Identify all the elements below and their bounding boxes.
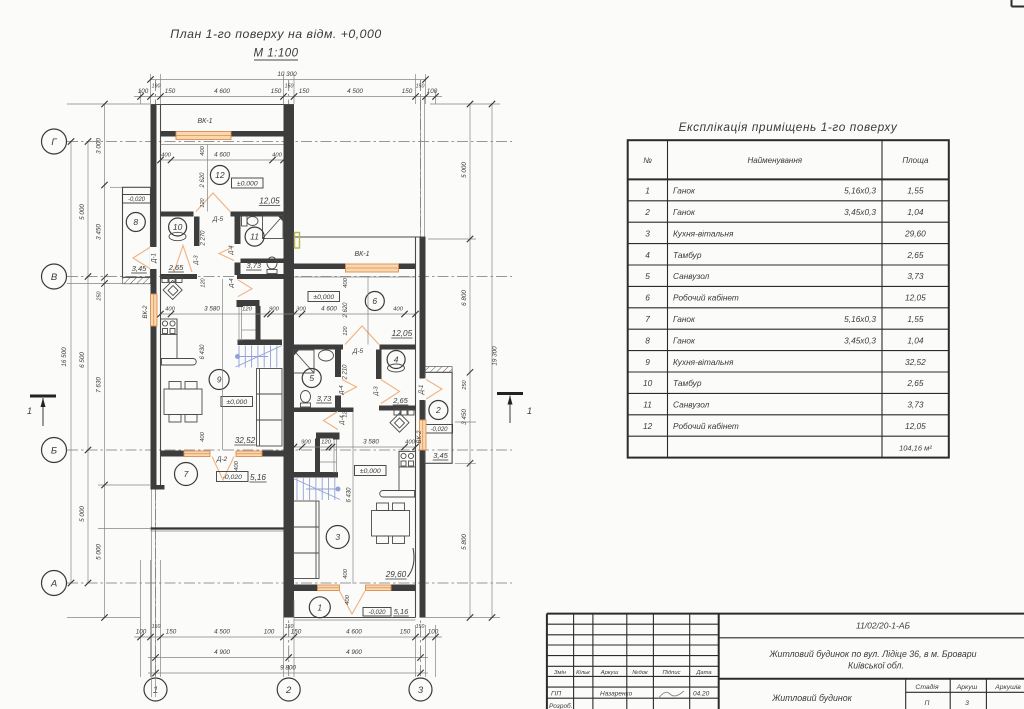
svg-text:Д-4: Д-4 bbox=[229, 245, 235, 255]
svg-text:Аркуш: Аркуш bbox=[956, 684, 978, 691]
svg-text:250: 250 bbox=[97, 290, 103, 301]
svg-text:12: 12 bbox=[643, 421, 653, 431]
svg-text:Аркушів: Аркушів bbox=[994, 683, 1021, 691]
svg-text:6 430: 6 430 bbox=[347, 487, 353, 503]
svg-text:±0,000: ±0,000 bbox=[313, 294, 334, 301]
svg-text:Експлікація приміщень 1-го пов: Експлікація приміщень 1-го поверху bbox=[679, 120, 898, 134]
svg-text:150: 150 bbox=[285, 84, 294, 90]
svg-text:120: 120 bbox=[242, 307, 252, 313]
svg-text:ВК-1: ВК-1 bbox=[354, 251, 369, 258]
svg-text:3,45: 3,45 bbox=[433, 451, 448, 460]
svg-text:150: 150 bbox=[165, 88, 176, 95]
svg-text:32,52: 32,52 bbox=[235, 436, 256, 445]
svg-text:1,04: 1,04 bbox=[907, 335, 924, 345]
svg-text:Робочий кабінет: Робочий кабінет bbox=[673, 293, 739, 303]
svg-text:400: 400 bbox=[345, 594, 351, 604]
svg-text:3 580: 3 580 bbox=[204, 306, 220, 313]
svg-text:6 500: 6 500 bbox=[79, 352, 86, 368]
svg-text:1: 1 bbox=[645, 186, 650, 196]
svg-text:3: 3 bbox=[965, 700, 969, 707]
svg-text:300: 300 bbox=[296, 307, 306, 313]
svg-text:ГІП: ГІП bbox=[551, 691, 561, 698]
svg-text:-0,020: -0,020 bbox=[223, 474, 242, 481]
svg-text:3,45х0,3: 3,45х0,3 bbox=[844, 335, 876, 345]
svg-text:Ганок: Ганок bbox=[673, 314, 696, 324]
svg-text:Підпис: Підпис bbox=[662, 670, 680, 676]
svg-text:2 620: 2 620 bbox=[343, 302, 349, 319]
svg-text:-0,020: -0,020 bbox=[128, 197, 146, 203]
svg-text:150: 150 bbox=[299, 88, 310, 95]
svg-text:Стадія: Стадія bbox=[915, 683, 939, 691]
svg-text:120: 120 bbox=[201, 277, 207, 287]
svg-text:5,16: 5,16 bbox=[250, 473, 266, 482]
svg-text:Київської обл.: Київської обл. bbox=[848, 661, 904, 671]
svg-text:3,73: 3,73 bbox=[907, 400, 924, 410]
svg-text:10: 10 bbox=[643, 378, 653, 388]
svg-text:120: 120 bbox=[321, 440, 331, 446]
svg-text:1,04: 1,04 bbox=[907, 207, 924, 217]
svg-text:5: 5 bbox=[309, 373, 314, 383]
svg-text:900: 900 bbox=[269, 307, 279, 313]
svg-text:Дата: Дата bbox=[695, 670, 712, 676]
svg-text:2 210: 2 210 bbox=[343, 364, 349, 381]
svg-text:5 000: 5 000 bbox=[79, 506, 86, 522]
svg-text:12,05: 12,05 bbox=[905, 293, 926, 303]
svg-text:100: 100 bbox=[427, 88, 438, 95]
svg-text:4 600: 4 600 bbox=[346, 629, 362, 636]
svg-text:190: 190 bbox=[152, 84, 161, 90]
svg-text:150: 150 bbox=[416, 84, 425, 90]
svg-text:План 1-го поверху на відм. +0,: План 1-го поверху на відм. +0,000 bbox=[170, 27, 381, 41]
svg-text:400: 400 bbox=[272, 153, 282, 159]
svg-text:1: 1 bbox=[527, 406, 532, 416]
svg-text:104,16 м²: 104,16 м² bbox=[899, 444, 932, 453]
svg-text:6 800: 6 800 bbox=[461, 290, 468, 306]
svg-text:11/02/20-1-АБ: 11/02/20-1-АБ bbox=[856, 621, 911, 631]
svg-text:2: 2 bbox=[644, 207, 650, 217]
svg-text:Житловий будинок по вул. Лідіц: Житловий будинок по вул. Лідіце 36, в м.… bbox=[768, 649, 976, 659]
svg-text:±0,000: ±0,000 bbox=[237, 180, 258, 187]
svg-text:Тамбур: Тамбур bbox=[673, 378, 702, 388]
svg-text:5 800: 5 800 bbox=[461, 534, 468, 550]
svg-text:Кухня-вітальня: Кухня-вітальня bbox=[673, 357, 734, 367]
svg-text:Площа: Площа bbox=[902, 156, 929, 165]
svg-text:10: 10 bbox=[173, 222, 183, 232]
svg-text:В: В bbox=[51, 272, 58, 283]
svg-text:Найменування: Найменування bbox=[747, 156, 802, 165]
svg-text:Д-2: Д-2 bbox=[216, 456, 228, 463]
svg-text:04.20: 04.20 bbox=[693, 691, 710, 698]
svg-text:Д-1: Д-1 bbox=[152, 253, 158, 264]
svg-text:3,73: 3,73 bbox=[317, 394, 332, 403]
svg-text:100: 100 bbox=[138, 88, 149, 95]
svg-text:400: 400 bbox=[234, 460, 240, 470]
svg-text:5 000: 5 000 bbox=[461, 162, 468, 178]
svg-text:8: 8 bbox=[645, 335, 650, 345]
svg-text:4 500: 4 500 bbox=[347, 88, 363, 95]
svg-text:№док: №док bbox=[632, 670, 648, 676]
svg-text:№: № bbox=[643, 156, 652, 165]
svg-text:2 620: 2 620 bbox=[200, 172, 206, 189]
svg-text:120: 120 bbox=[343, 407, 349, 417]
svg-text:120: 120 bbox=[343, 325, 349, 335]
svg-text:Д-5: Д-5 bbox=[212, 216, 224, 223]
svg-text:5: 5 bbox=[645, 271, 650, 281]
svg-text:7: 7 bbox=[184, 469, 189, 479]
svg-text:400: 400 bbox=[405, 440, 415, 446]
svg-text:3,45х0,3: 3,45х0,3 bbox=[844, 207, 876, 217]
svg-text:7 630: 7 630 bbox=[96, 377, 103, 393]
svg-text:12: 12 bbox=[215, 170, 225, 180]
svg-text:Тамбур: Тамбур bbox=[673, 250, 702, 260]
svg-text:9: 9 bbox=[217, 375, 222, 385]
svg-text:2,65: 2,65 bbox=[168, 263, 184, 272]
svg-text:400: 400 bbox=[393, 307, 403, 313]
svg-text:400: 400 bbox=[200, 431, 206, 441]
svg-text:12,05: 12,05 bbox=[392, 329, 413, 338]
svg-text:5 000: 5 000 bbox=[79, 204, 86, 220]
svg-text:150: 150 bbox=[402, 88, 413, 95]
svg-text:±0,000: ±0,000 bbox=[360, 468, 381, 475]
svg-text:1,55: 1,55 bbox=[907, 186, 924, 196]
svg-text:±0,000: ±0,000 bbox=[226, 399, 247, 406]
svg-text:100: 100 bbox=[264, 629, 275, 636]
svg-text:-0,020: -0,020 bbox=[430, 427, 448, 433]
svg-text:Кухня-вітальня: Кухня-вітальня bbox=[673, 228, 734, 238]
svg-text:3: 3 bbox=[645, 228, 650, 238]
svg-text:6: 6 bbox=[645, 293, 650, 303]
svg-text:Ганок: Ганок bbox=[673, 207, 696, 217]
svg-text:3: 3 bbox=[418, 685, 424, 696]
svg-text:32,52: 32,52 bbox=[905, 357, 926, 367]
svg-text:150: 150 bbox=[416, 624, 425, 630]
svg-text:400: 400 bbox=[343, 568, 349, 578]
svg-text:3,73: 3,73 bbox=[907, 271, 924, 281]
svg-text:4 600: 4 600 bbox=[214, 88, 230, 95]
svg-text:3 450: 3 450 bbox=[96, 224, 103, 240]
svg-text:9 800: 9 800 bbox=[280, 665, 296, 672]
svg-text:Г: Г bbox=[51, 137, 57, 148]
svg-text:Д-4: Д-4 bbox=[339, 385, 345, 395]
svg-text:6 430: 6 430 bbox=[200, 344, 206, 360]
svg-text:1,55: 1,55 bbox=[907, 314, 924, 324]
svg-text:4 900: 4 900 bbox=[214, 649, 230, 656]
svg-text:4 900: 4 900 bbox=[346, 649, 362, 656]
svg-text:400: 400 bbox=[343, 277, 349, 287]
svg-text:4 500: 4 500 bbox=[214, 629, 230, 636]
svg-text:5,16х0,3: 5,16х0,3 bbox=[844, 186, 876, 196]
svg-text:2: 2 bbox=[435, 405, 441, 415]
svg-text:3,73: 3,73 bbox=[246, 261, 261, 270]
svg-text:Санвузол: Санвузол bbox=[673, 400, 710, 410]
svg-text:Б: Б bbox=[51, 445, 57, 456]
svg-text:400: 400 bbox=[200, 145, 206, 155]
svg-text:900: 900 bbox=[301, 440, 311, 446]
svg-text:2 270: 2 270 bbox=[201, 230, 207, 247]
svg-text:Розроб.: Розроб. bbox=[549, 702, 573, 709]
svg-text:29,60: 29,60 bbox=[385, 570, 407, 579]
svg-text:Кільк: Кільк bbox=[576, 670, 590, 676]
svg-text:12,05: 12,05 bbox=[905, 421, 926, 431]
svg-text:29,60: 29,60 bbox=[904, 228, 926, 238]
svg-text:19 300: 19 300 bbox=[492, 346, 499, 366]
svg-text:А: А bbox=[50, 578, 57, 589]
svg-text:3 450: 3 450 bbox=[461, 409, 468, 425]
svg-text:12,05: 12,05 bbox=[259, 197, 280, 206]
svg-text:4: 4 bbox=[394, 355, 399, 365]
svg-text:8: 8 bbox=[133, 217, 138, 227]
svg-text:Змін: Змін bbox=[554, 670, 567, 676]
svg-text:150: 150 bbox=[166, 629, 177, 636]
svg-text:-0,020: -0,020 bbox=[368, 610, 386, 616]
svg-text:Д-4: Д-4 bbox=[229, 278, 235, 288]
svg-text:4 600: 4 600 bbox=[321, 306, 337, 313]
svg-text:400: 400 bbox=[161, 153, 171, 159]
svg-text:ВК-2: ВК-2 bbox=[417, 430, 423, 444]
svg-text:Д-3: Д-3 bbox=[194, 255, 200, 266]
svg-text:Назаренко: Назаренко bbox=[600, 691, 633, 698]
svg-text:400: 400 bbox=[165, 307, 175, 313]
svg-text:120: 120 bbox=[200, 197, 206, 207]
svg-text:5,16х0,3: 5,16х0,3 bbox=[844, 314, 876, 324]
svg-text:1: 1 bbox=[317, 602, 322, 612]
svg-text:150: 150 bbox=[291, 629, 302, 636]
svg-text:ВК-2: ВК-2 bbox=[143, 305, 149, 319]
svg-text:2,65: 2,65 bbox=[392, 396, 408, 405]
svg-text:150: 150 bbox=[400, 629, 411, 636]
svg-text:150: 150 bbox=[152, 624, 161, 630]
svg-text:П: П bbox=[925, 700, 930, 707]
svg-text:3 000: 3 000 bbox=[96, 138, 103, 154]
svg-text:3: 3 bbox=[335, 532, 340, 542]
svg-text:16 500: 16 500 bbox=[61, 347, 68, 367]
svg-text:Д-5: Д-5 bbox=[352, 348, 364, 355]
svg-text:6: 6 bbox=[372, 296, 377, 306]
svg-text:Санвузол: Санвузол bbox=[673, 271, 710, 281]
svg-text:Д-3: Д-3 bbox=[374, 386, 380, 397]
svg-text:Ганок: Ганок bbox=[673, 186, 696, 196]
svg-text:5 000: 5 000 bbox=[96, 544, 103, 560]
svg-text:4 600: 4 600 bbox=[214, 152, 230, 159]
svg-text:2,65: 2,65 bbox=[906, 378, 924, 388]
svg-text:ВК-1: ВК-1 bbox=[197, 118, 212, 125]
svg-text:Д-1: Д-1 bbox=[419, 385, 425, 396]
svg-text:Робочий кабінет: Робочий кабінет bbox=[673, 421, 739, 431]
svg-text:3 580: 3 580 bbox=[363, 439, 379, 446]
svg-text:100: 100 bbox=[136, 629, 147, 636]
svg-text:2,65: 2,65 bbox=[906, 250, 924, 260]
svg-text:Ганок: Ганок bbox=[673, 335, 696, 345]
svg-text:10 300: 10 300 bbox=[277, 71, 297, 78]
svg-text:Житловий будинок: Житловий будинок bbox=[771, 693, 852, 703]
svg-text:11: 11 bbox=[250, 232, 259, 242]
svg-text:4: 4 bbox=[645, 250, 650, 260]
svg-text:5,16: 5,16 bbox=[394, 607, 409, 616]
svg-text:1: 1 bbox=[27, 406, 32, 416]
svg-text:2: 2 bbox=[285, 685, 292, 696]
svg-text:100: 100 bbox=[428, 629, 439, 636]
svg-text:Аркуш: Аркуш bbox=[600, 670, 619, 676]
svg-text:7: 7 bbox=[645, 314, 650, 324]
svg-text:М 1:100: М 1:100 bbox=[253, 48, 298, 60]
svg-text:150: 150 bbox=[271, 88, 282, 95]
svg-text:250: 250 bbox=[462, 379, 468, 390]
svg-text:11: 11 bbox=[643, 400, 652, 410]
svg-text:9: 9 bbox=[645, 357, 650, 367]
